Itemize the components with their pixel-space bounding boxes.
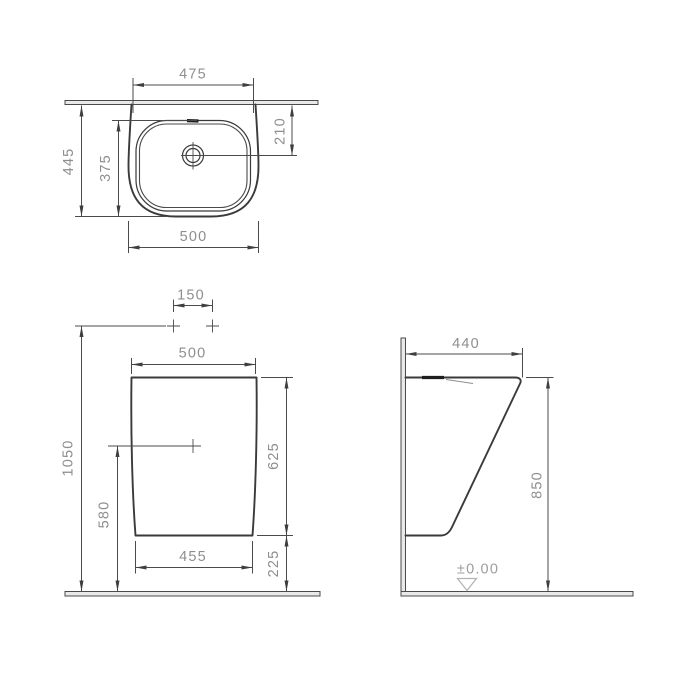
arrowhead-icon (80, 206, 84, 217)
arrowhead-icon (117, 121, 121, 132)
arrowhead-icon (116, 581, 120, 592)
arrowhead-icon (80, 581, 84, 592)
floor-level-datum: ±0.00 (457, 562, 499, 591)
arrowhead-icon (136, 566, 147, 570)
basin-side-profile (406, 378, 521, 536)
dim-label: 625 (266, 442, 282, 470)
dim-bowl-depth: 375 (98, 121, 197, 217)
arrowhead-icon (116, 446, 120, 457)
dim-label: 375 (98, 154, 114, 182)
arrowhead-icon (80, 326, 84, 337)
dim-label: 150 (177, 288, 205, 304)
dim-top-width: 475 (133, 67, 254, 114)
dim-label: 580 (97, 501, 113, 529)
dim-label: 1050 (61, 439, 77, 476)
drain-outlet (181, 142, 297, 170)
dim-label: 455 (179, 549, 207, 565)
arrowhead-icon (129, 246, 140, 250)
drawing-canvas: 475 445 375 210 (0, 0, 675, 675)
dim-label: 440 (452, 336, 480, 352)
arrowhead-icon (242, 566, 253, 570)
arrowhead-icon (285, 536, 289, 547)
dim-total-height: 1050 (61, 326, 167, 592)
dim-label: 475 (179, 67, 207, 83)
arrowhead-icon (546, 581, 550, 592)
dim-label: 445 (61, 148, 77, 176)
dim-label: 500 (179, 346, 207, 362)
arrowhead-icon (285, 378, 289, 389)
dim-side-height: 850 (526, 378, 554, 592)
wall-line-top-view (65, 101, 318, 105)
view-side: 440 850 ±0.00 (401, 336, 633, 596)
dim-drain-offset: 210 (273, 106, 295, 156)
arrowhead-icon (546, 378, 550, 389)
arrowhead-icon (174, 304, 185, 308)
drain-center-mark (108, 439, 201, 453)
fixing-hole-cross (206, 320, 219, 333)
floor-line-side-view (401, 592, 633, 597)
arrowhead-icon (202, 304, 213, 308)
view-top: 475 445 375 210 (61, 67, 318, 254)
arrowhead-icon (512, 352, 523, 356)
fixing-holes (167, 320, 219, 333)
arrowhead-icon (285, 525, 289, 536)
dim-overall-width-top-view: 500 (129, 221, 259, 253)
dim-bottom-width: 455 (136, 541, 253, 574)
floor-line-front-view (65, 592, 320, 597)
datum-label: ±0.00 (457, 562, 499, 578)
dim-drain-height: 580 (97, 446, 120, 592)
pedestal-front-outline (131, 378, 256, 536)
dim-side-depth: 440 (406, 336, 523, 378)
dim-label: 210 (273, 117, 289, 145)
arrowhead-icon (133, 83, 144, 87)
dim-bottom-gap: 225 (266, 536, 289, 592)
arrowhead-icon (406, 352, 417, 356)
technical-drawing-washbasin: 475 445 375 210 (0, 0, 675, 675)
dim-body-height: 625 (257, 378, 293, 536)
arrowhead-icon (243, 83, 254, 87)
arrowhead-icon (80, 106, 84, 117)
dim-top-width-front-view: 500 (132, 346, 256, 375)
view-front: 150 1050 500 580 (61, 288, 321, 597)
dim-label: 850 (530, 471, 546, 499)
dim-label: 500 (180, 229, 208, 245)
fixing-hole-cross (167, 320, 180, 333)
arrowhead-icon (290, 106, 294, 117)
arrowhead-icon (245, 363, 256, 367)
dim-label: 225 (266, 550, 282, 578)
datum-triangle-icon (458, 579, 477, 591)
arrowhead-icon (132, 363, 143, 367)
dim-hole-spacing: 150 (174, 288, 213, 313)
arrowhead-icon (117, 206, 121, 217)
arrowhead-icon (290, 145, 294, 156)
inner-basin-line (446, 380, 473, 384)
arrowhead-icon (248, 246, 259, 250)
arrowhead-icon (285, 581, 289, 592)
wall-line-side-view (401, 338, 406, 592)
